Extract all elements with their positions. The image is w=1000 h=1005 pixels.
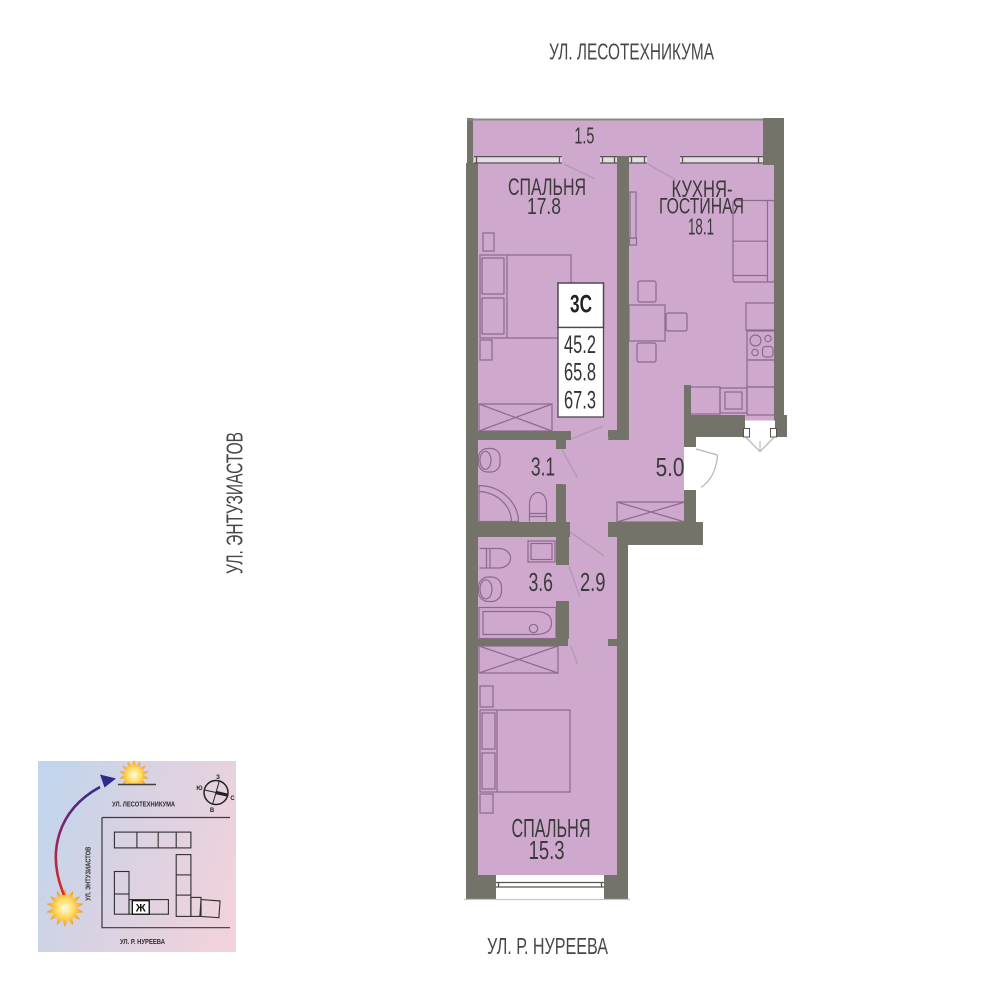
svg-text:УЛ. Р. НУРЕЕВА: УЛ. Р. НУРЕЕВА — [120, 937, 165, 946]
svg-text:3.1: 3.1 — [531, 452, 555, 482]
svg-text:Ю: Ю — [196, 786, 202, 792]
svg-text:5.0: 5.0 — [656, 452, 685, 482]
svg-text:45.2: 45.2 — [564, 331, 596, 359]
svg-text:В: В — [210, 808, 215, 814]
svg-text:УЛ. ЭНТУЗИАСТОВ: УЛ. ЭНТУЗИАСТОВ — [84, 846, 93, 900]
svg-text:18.1: 18.1 — [688, 214, 714, 240]
svg-text:УЛ. ЭНТУЗИАСТОВ: УЛ. ЭНТУЗИАСТОВ — [222, 432, 248, 574]
svg-text:С: С — [230, 796, 235, 802]
svg-text:УЛ. ЛЕСОТЕХНИКУМА: УЛ. ЛЕСОТЕХНИКУМА — [549, 39, 714, 65]
svg-text:3С: 3С — [570, 291, 592, 319]
svg-text:17.8: 17.8 — [527, 193, 561, 219]
svg-text:УЛ. Р. НУРЕЕВА: УЛ. Р. НУРЕЕВА — [487, 933, 608, 959]
svg-text:65.8: 65.8 — [564, 359, 596, 387]
svg-text:Ж: Ж — [135, 903, 146, 915]
svg-text:УЛ. ЛЕСОТЕХНИКУМА: УЛ. ЛЕСОТЕХНИКУМА — [112, 800, 175, 809]
svg-text:3.6: 3.6 — [528, 567, 553, 597]
svg-text:З: З — [216, 775, 220, 781]
svg-text:1.5: 1.5 — [574, 123, 594, 149]
svg-text:67.3: 67.3 — [564, 387, 596, 415]
svg-text:2.9: 2.9 — [580, 567, 606, 597]
svg-text:15.3: 15.3 — [529, 835, 565, 865]
